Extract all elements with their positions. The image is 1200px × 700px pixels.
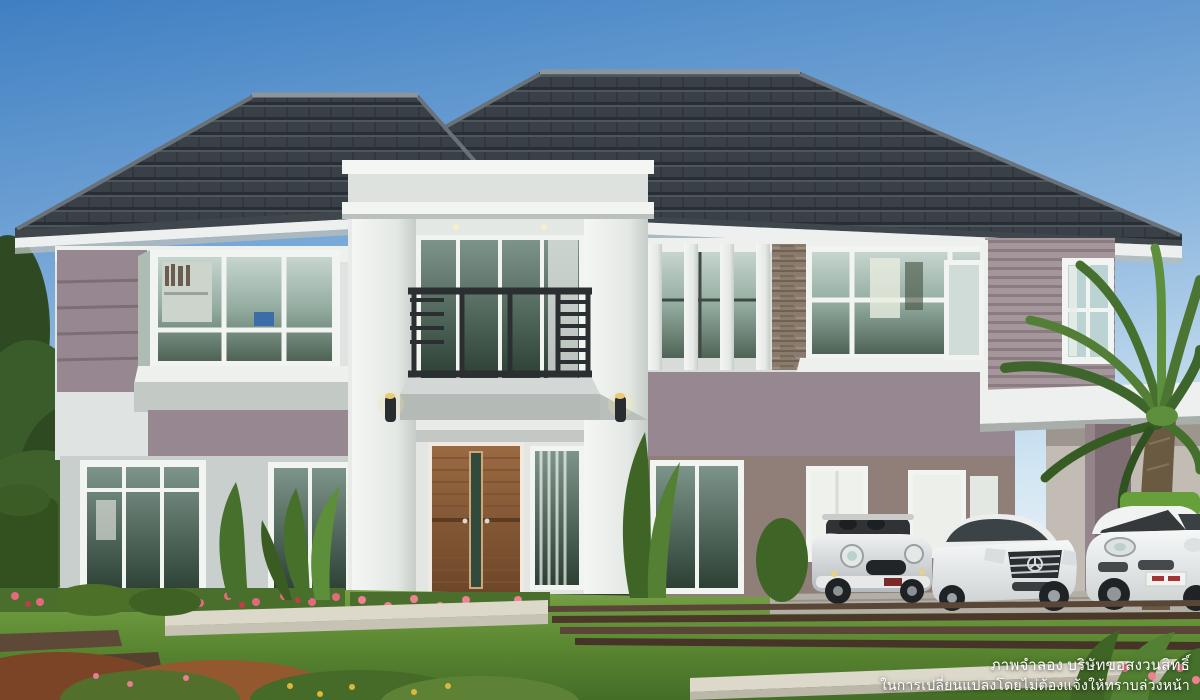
mini-windshield-frame — [822, 514, 914, 520]
mauve-corner-pillar — [57, 250, 147, 392]
left-bay-window — [80, 460, 206, 600]
car-white-suv — [1086, 506, 1200, 611]
disclaimer-line-2: ในการเปลี่ยนแปลงโดยไม่ต้องแจ้งให้ทราบล่ว… — [880, 676, 1190, 694]
porch-window — [530, 446, 584, 590]
downlight — [541, 224, 547, 230]
end-wall-window — [944, 260, 984, 360]
door-handle — [485, 519, 490, 524]
mini-grille — [866, 560, 906, 575]
disclaimer-text: ภาพจำลอง บริษัทขอสงวนสิทธิ์ ในการเปลี่ยน… — [880, 656, 1190, 694]
fin-window-band — [648, 244, 770, 370]
computer-monitor — [254, 312, 274, 326]
door-glass-strip — [470, 452, 482, 588]
parapet-cap — [342, 160, 654, 174]
disclaimer-line-1: ภาพจำลอง บริษัทขอสงวนสิทธิ์ — [880, 656, 1190, 676]
stone-pillar — [772, 244, 806, 370]
house-render-image: ภาพจำลอง บริษัทขอสงวนสิทธิ์ ในการเปลี่ยน… — [0, 0, 1200, 700]
left-ledge — [134, 366, 352, 384]
study-corner-window — [138, 250, 340, 374]
balcony-curtain — [548, 240, 578, 378]
mini-license-plate — [884, 578, 902, 586]
balcony-slab — [400, 378, 600, 394]
entrance-tower — [342, 160, 654, 620]
mini-headlight — [905, 545, 923, 563]
door-handle — [463, 519, 468, 524]
downlight — [453, 224, 459, 230]
right-mauve-band — [645, 372, 1015, 458]
scene-svg — [0, 0, 1200, 700]
front-door — [428, 442, 524, 596]
